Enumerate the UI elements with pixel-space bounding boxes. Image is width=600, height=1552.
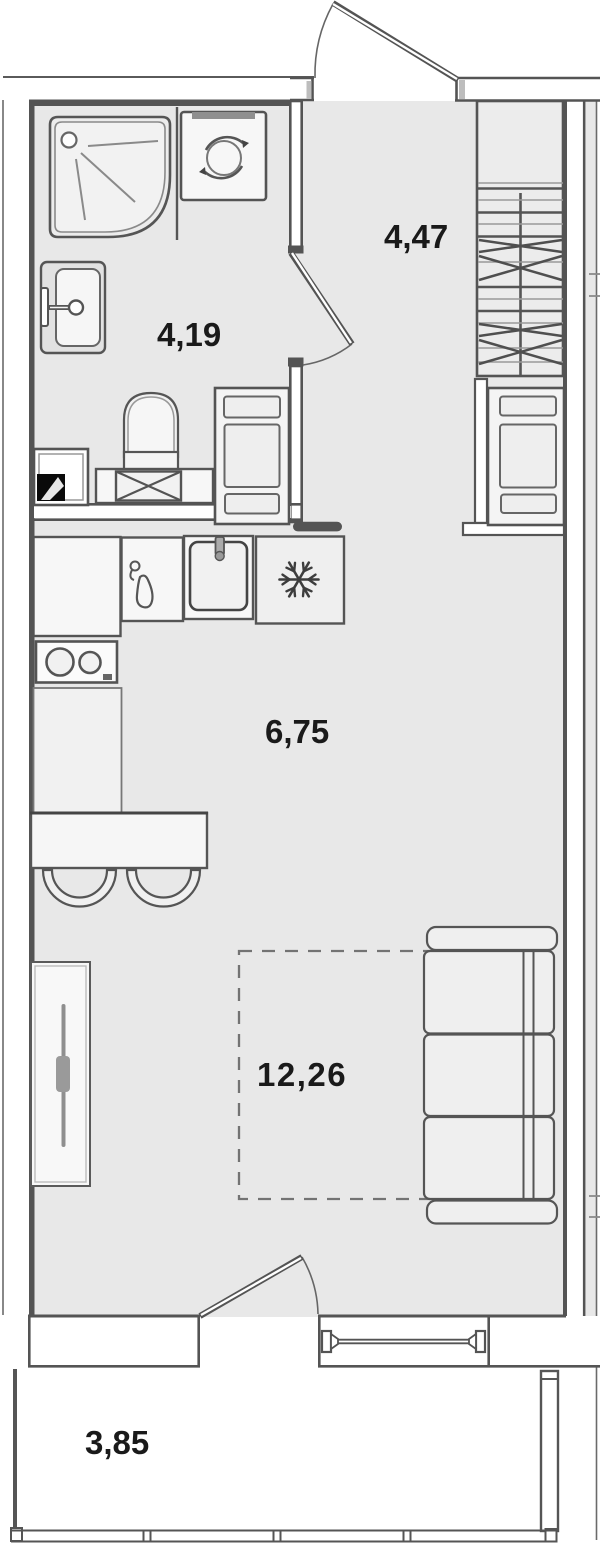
svg-text:3,85: 3,85 xyxy=(85,1424,149,1461)
svg-text:4,19: 4,19 xyxy=(157,316,221,353)
svg-text:6,75: 6,75 xyxy=(265,713,329,750)
svg-text:4,47: 4,47 xyxy=(384,218,448,255)
svg-text:12,26: 12,26 xyxy=(257,1056,347,1093)
